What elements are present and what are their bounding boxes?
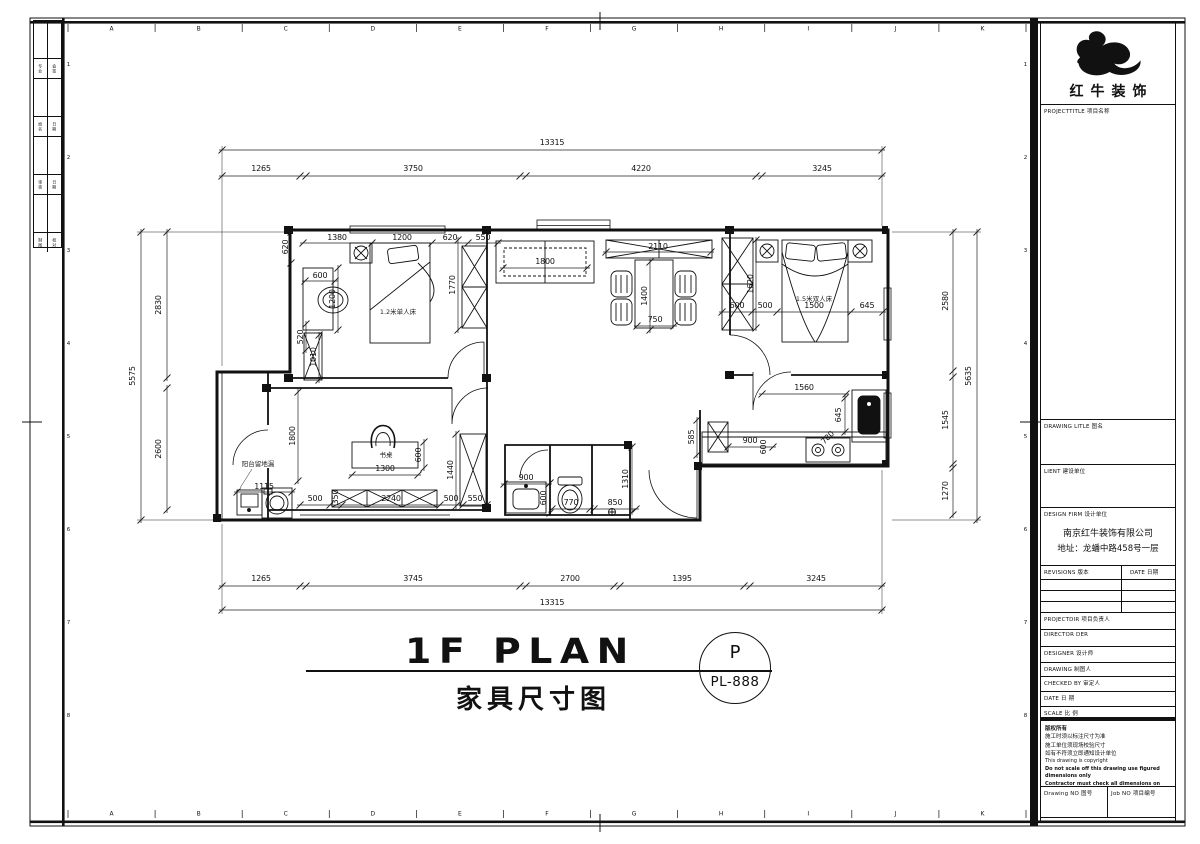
dim-label: 600: [540, 491, 548, 506]
rednull-logo-icon: [1069, 31, 1147, 79]
revisions-table: REVISIONS 版本 DATE 日期: [1041, 566, 1175, 613]
grid-letter: I: [807, 811, 809, 818]
scale-label: SCALE 比 例: [1041, 707, 1175, 717]
revisions-label: REVISIONS 版本: [1041, 566, 1127, 579]
client-label: LIENT 建设单位: [1041, 465, 1175, 475]
grid-number: 1: [1024, 62, 1028, 68]
dim-label: 1265: [251, 575, 271, 583]
dim-label: 750: [648, 316, 663, 324]
extension-lines: [137, 146, 981, 614]
dim-label: 2600: [155, 439, 163, 459]
copyright-line: 施工单位须现场校验尺寸: [1045, 742, 1171, 750]
checked-by-label: CHECKED BY 审定人: [1041, 677, 1175, 687]
dim-label: 1270: [942, 481, 950, 501]
toilet-tank: [558, 477, 582, 485]
dim-label: 1800: [535, 258, 555, 266]
grid-letter: B: [197, 811, 201, 818]
dim-label: 2830: [155, 295, 163, 315]
dim-label: 1545: [942, 410, 950, 430]
grid-letter: F: [545, 811, 548, 818]
floor-plan-canvas: [0, 0, 1200, 844]
dim-label: 1770: [449, 275, 457, 295]
dim-label: 2580: [942, 291, 950, 311]
dim-label: 500: [758, 302, 773, 310]
checked-by-cell: CHECKED BY 审定人: [1041, 677, 1175, 692]
designer-cell: DESIGNER 设计师: [1041, 647, 1175, 663]
dim-label: 1500: [804, 302, 824, 310]
dim-label: 2110: [648, 243, 668, 251]
dim-label: 1300: [375, 465, 395, 473]
logo-cell: 红牛装饰: [1041, 22, 1175, 105]
grid-letter: K: [980, 26, 984, 33]
signature-cell: 制图: [34, 233, 48, 252]
drawing-no-label: Drawing NO 图号: [1041, 787, 1107, 797]
washing-machine: [262, 488, 292, 518]
desk-chair: [371, 426, 394, 449]
client-cell: LIENT 建设单位: [1041, 465, 1175, 508]
grid-number: 2: [1024, 155, 1028, 161]
dim-label: 5575: [129, 366, 137, 386]
dim-label: 600: [760, 440, 768, 455]
drawing-number-stamp: P PL-888: [699, 632, 771, 704]
copyright-cell: 版权所有施工时须以标注尺寸为准施工单位须现场校验尺寸如有不符须立即通知设计单位T…: [1041, 721, 1175, 787]
dim-label: 1395: [672, 575, 692, 583]
dim-label: 1310: [622, 469, 630, 489]
dim-label: 1800: [289, 426, 297, 446]
drawing-title-cell: DRAWING LITLE 图名: [1041, 420, 1175, 465]
copyright-line: 如有不符须立即通知设计单位: [1045, 750, 1171, 758]
project-title-cell: PROJECTTITLE 项目名称: [1041, 105, 1175, 420]
dim-label: 600: [415, 448, 423, 463]
dim-label: 585: [688, 430, 696, 445]
signature-cell: 姓名: [34, 117, 48, 136]
grid-letter: G: [632, 811, 637, 818]
room-label: 1.2米单人床: [380, 309, 416, 316]
dim-label: 645: [835, 408, 843, 423]
dim-label: 2240: [381, 495, 401, 503]
dim-label: 5635: [965, 366, 973, 386]
dim-label: 2700: [560, 575, 580, 583]
copyright-line: This drawing is copyright: [1045, 758, 1171, 766]
dim-label: 550: [476, 234, 491, 242]
title-block: 红牛装饰 PROJECTTITLE 项目名称 DRAWING LITLE 图名 …: [1040, 22, 1176, 821]
dim-label: 620: [282, 240, 290, 255]
dim-label: 3245: [806, 575, 826, 583]
dim-label: 770: [564, 499, 579, 507]
dim-label: 600: [313, 272, 328, 280]
revision-row: [1041, 580, 1175, 591]
dim-label: 500: [308, 495, 323, 503]
grid-number: 1: [67, 62, 71, 68]
dimension-lines: [138, 147, 981, 614]
dim-label: 900: [519, 474, 534, 482]
grid-letter: A: [109, 811, 113, 818]
date-cell: DATE 日 期: [1041, 692, 1175, 707]
copyright-line: 施工时须以标注尺寸为准: [1045, 733, 1171, 741]
floor-drain: [609, 509, 616, 516]
grid-number: 3: [1024, 248, 1028, 254]
grid-number: 8: [67, 713, 71, 719]
drawing-person-label: DRAWING 制图人: [1041, 663, 1175, 673]
logo-text: 红牛装饰: [1063, 81, 1154, 101]
grid-letter: A: [109, 26, 113, 33]
stamp-letter: P: [700, 642, 770, 663]
dim-label: 3750: [403, 165, 423, 173]
room-label: 书桌: [380, 452, 393, 459]
signature-cell: 专业: [34, 59, 48, 78]
design-firm-cell: DESIGN FIRM 设计单位 南京红牛装饰有限公司 地址：龙蟠中路458号一…: [1041, 508, 1175, 566]
revisions-date-label: DATE 日期: [1127, 566, 1161, 579]
dim-label: 550: [468, 495, 483, 503]
project-title-label: PROJECTTITLE 项目名称: [1041, 105, 1175, 115]
dim-label: 1200: [329, 289, 337, 309]
single-bed: [370, 243, 430, 343]
signature-strip: 专业会签姓名日期审核日期制图校对: [33, 20, 62, 248]
designer-label: DESIGNER 设计师: [1041, 647, 1175, 657]
scale-cell: SCALE 比 例: [1041, 707, 1175, 718]
grid-number: 8: [1024, 713, 1028, 719]
dim-label: 1560: [794, 384, 814, 392]
director-label: DIRECTOR DER: [1041, 630, 1175, 638]
grid-letter: G: [632, 26, 637, 33]
grid-letter: J: [894, 26, 896, 33]
grid-number: 2: [67, 155, 71, 161]
grid-number: 6: [1024, 527, 1028, 533]
grid-letter: I: [807, 26, 809, 33]
dim-label: 3745: [403, 575, 423, 583]
signature-cell: 会签: [48, 59, 62, 78]
revision-row: [1041, 591, 1175, 602]
revision-row: [1041, 602, 1175, 612]
grid-letter: H: [719, 811, 724, 818]
project-dir-cell: PROJECTDIR 项目负责人: [1041, 613, 1175, 630]
dim-label: 850: [608, 499, 623, 507]
dim-label: 350: [332, 490, 340, 505]
copyright-line: 版权所有: [1045, 725, 1171, 733]
dim-label: 900: [743, 437, 758, 445]
stamp-code: PL-888: [700, 674, 770, 690]
grid-number: 4: [67, 341, 71, 347]
grid-letter: K: [980, 811, 984, 818]
dim-label: 645: [860, 302, 875, 310]
dim-label: 620: [443, 234, 458, 242]
dim-label: 1440: [447, 460, 455, 480]
drawing-no-cell: Drawing NO 图号 Job NO 项目编号: [1041, 787, 1175, 818]
copyright-line: Do not scale off this drawing use figure…: [1045, 766, 1171, 781]
grid-number: 4: [1024, 341, 1028, 347]
grid-letter: E: [458, 811, 462, 818]
director-cell: DIRECTOR DER: [1041, 630, 1175, 647]
grid-letter: F: [545, 26, 548, 33]
job-no-label: Job NO 项目编号: [1108, 787, 1175, 797]
dim-label: 3245: [812, 165, 832, 173]
grid-letter: C: [284, 26, 288, 33]
signature-cell: 日期: [48, 175, 62, 194]
drawing-sheet: 1331512653750422032451265374527001395324…: [0, 0, 1200, 844]
signature-cell: 日期: [48, 117, 62, 136]
dim-label: 1010: [310, 347, 318, 367]
dim-label: 1380: [327, 234, 347, 242]
dim-label: 1265: [251, 165, 271, 173]
dim-label: 520: [297, 330, 305, 345]
dim-label: 4220: [631, 165, 651, 173]
firm-name: 南京红牛装饰有限公司: [1041, 526, 1175, 539]
room-label: 阳台留地漏: [242, 461, 275, 468]
dim-label: 13315: [540, 599, 564, 607]
dim-label: 600: [730, 302, 745, 310]
dim-label: 1115: [254, 483, 274, 491]
plan-subtitle: 家具尺寸图: [456, 679, 611, 716]
grid-number: 5: [67, 434, 71, 440]
grid-letter: J: [894, 811, 896, 818]
dim-label: 13315: [540, 139, 564, 147]
date-label: DATE 日 期: [1041, 692, 1175, 702]
dim-label: 1620: [747, 274, 755, 294]
design-firm-label: DESIGN FIRM 设计单位: [1041, 508, 1175, 518]
grid-letter: C: [284, 811, 288, 818]
drawing-title-label: DRAWING LITLE 图名: [1041, 420, 1175, 430]
firm-address: 地址：龙蟠中路458号一层: [1041, 542, 1175, 554]
signature-cell: 校对: [48, 233, 62, 252]
room-label: 1.5米双人床: [796, 296, 832, 303]
drawing-person-cell: DRAWING 制图人: [1041, 663, 1175, 677]
signature-cell: 审核: [34, 175, 48, 194]
plan-title: 1F PLAN: [405, 632, 636, 672]
grid-number: 3: [67, 248, 71, 254]
dim-label: 1200: [392, 234, 412, 242]
dim-label: 1400: [641, 286, 649, 306]
grid-number: 7: [67, 620, 71, 626]
grid-number: 7: [1024, 620, 1028, 626]
grid-number: 5: [1024, 434, 1028, 440]
grid-letter: D: [371, 811, 376, 818]
grid-letter: D: [371, 26, 376, 33]
project-dir-label: PROJECTDIR 项目负责人: [1041, 613, 1175, 623]
grid-letter: E: [458, 26, 462, 33]
grid-number: 6: [67, 527, 71, 533]
grid-letter: B: [197, 26, 201, 33]
grid-letter: H: [719, 26, 724, 33]
dim-label: 500: [444, 495, 459, 503]
